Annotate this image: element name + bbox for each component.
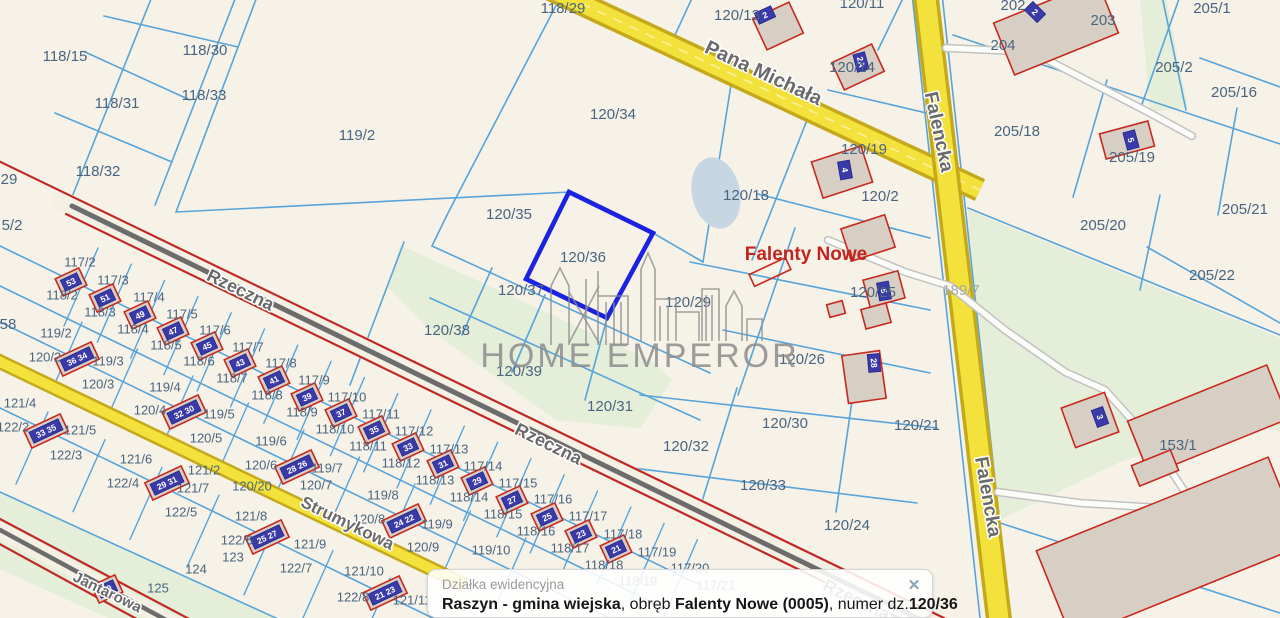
- parcel-label: 117/19: [638, 544, 677, 559]
- parcel-label: 118/32: [76, 163, 121, 180]
- parcel-label: 117/18: [604, 526, 643, 541]
- parcel-label: 117/9: [298, 372, 330, 387]
- parcel-label: 118/14: [450, 489, 489, 504]
- parcel-label: 205/19: [1109, 149, 1155, 166]
- parcel-label: 117/12: [395, 423, 434, 438]
- parcel-label: 119/7: [311, 460, 343, 475]
- parcel-label: 120/2: [29, 349, 62, 364]
- parcel-label: 121/7: [177, 480, 210, 495]
- parcel-label: 118/30: [183, 42, 228, 59]
- parcel-label: 205/1: [1193, 0, 1231, 17]
- building: [753, 2, 804, 50]
- parcel-label: 121/6: [120, 451, 153, 466]
- parcel-label: 124: [185, 561, 207, 576]
- parcel-label: 120/36: [560, 249, 606, 266]
- parcel-label: 118/33: [182, 87, 227, 104]
- parcel-label: 122/3: [50, 447, 83, 462]
- parcel-label: 117/6: [199, 322, 231, 337]
- parcel-label: 122/8: [337, 589, 370, 604]
- parcel-label: 205/16: [1211, 84, 1257, 101]
- parcel-label: 120/18: [723, 187, 769, 204]
- parcel-boundary: [1140, 195, 1160, 290]
- parcel-boundary: [447, 0, 562, 215]
- parcel-label: 120/11: [840, 0, 885, 12]
- parcel-boundary: [176, 0, 258, 212]
- parcel-label: 118/11: [349, 438, 387, 453]
- parcel-label: 120/5: [190, 430, 223, 445]
- parcel-number: 120/36: [909, 596, 958, 613]
- parcel-label: 117/13: [430, 441, 469, 456]
- parcel-label: 117/2: [64, 254, 96, 269]
- parcel-label: 117/11: [362, 406, 400, 421]
- separator-text: , numer dz.: [829, 596, 909, 613]
- parcel-label: 120/4: [134, 402, 167, 417]
- separator-text: , obręb: [621, 596, 675, 613]
- watermark-skyline: [660, 306, 668, 341]
- parcel-label: 121/9: [294, 536, 327, 551]
- close-icon[interactable]: ✕: [905, 577, 923, 595]
- municipality-name: Raszyn - gmina wiejska: [442, 596, 621, 613]
- parcel-boundary: [1200, 58, 1280, 87]
- parcel-boundary: [828, 90, 935, 115]
- parcel-label: 121/11: [393, 592, 432, 607]
- parcel-label: 5/2: [2, 217, 23, 234]
- parcel-label: 118/29: [541, 0, 586, 17]
- map-canvas[interactable]: 535149474543413937353331292725232136 343…: [0, 0, 1280, 618]
- parcel-boundary: [55, 113, 172, 162]
- parcel-label: 205/22: [1189, 267, 1235, 284]
- parcel-label: 121/8: [235, 508, 268, 523]
- parcel-label: 119/10: [472, 542, 511, 557]
- parcel-label: 118/8: [251, 387, 283, 402]
- parcel-label: 123: [222, 549, 244, 564]
- parcel-label: 122/5: [165, 504, 198, 519]
- parcel-label: 120/9: [407, 539, 440, 554]
- parcel-label: 118/7: [216, 370, 248, 385]
- parcel-label: 122/2: [0, 419, 29, 434]
- parcel-label: 204: [990, 37, 1015, 54]
- district-name: Falenty Nowe (0005): [675, 596, 829, 613]
- parcel-label: 120/37: [498, 282, 544, 299]
- parcel-label: 120/25: [850, 284, 896, 301]
- parcel-label: 122/7: [280, 560, 313, 575]
- parcel-label: 122/4: [107, 475, 140, 490]
- parcel-boundary: [85, 52, 190, 100]
- parcel-label: 118/31: [95, 95, 140, 112]
- parcel-label: 120/32: [663, 438, 709, 455]
- watermark-text: HOME EMPEROR: [480, 337, 799, 375]
- parcel-label: 119/8: [367, 487, 399, 502]
- building: [827, 301, 846, 318]
- cadastral-map: 535149474543413937353331292725232136 343…: [0, 0, 1280, 618]
- info-panel-title: Działka ewidencyjna: [442, 577, 918, 592]
- parcel-label: 121/4: [4, 395, 37, 410]
- parcel-label: 118/13: [416, 472, 455, 487]
- parcel-label: 119/3: [92, 353, 124, 368]
- parcel-label: 118/16: [517, 523, 556, 538]
- parcel-label: 117/4: [133, 289, 165, 304]
- parcel-label: 119/4: [149, 379, 181, 394]
- parcel-info-panel: ✕ Działka ewidencyjna Raszyn - gmina wie…: [427, 569, 933, 618]
- parcel-label: 120/2: [861, 188, 899, 205]
- building: [861, 303, 891, 329]
- watermark-skyline: [641, 253, 655, 341]
- parcel-label: 119/2: [339, 127, 375, 144]
- parcel-label: 119/6: [255, 433, 287, 448]
- parcel-label: 120/6: [245, 457, 278, 472]
- parcel-label: 125: [147, 580, 169, 595]
- parcel-label: 117/15: [499, 475, 538, 490]
- parcel-label: 118/10: [316, 421, 355, 436]
- parcel-label: 205/18: [994, 123, 1040, 140]
- parcel-label: 120/34: [590, 106, 636, 123]
- parcel-label: 119/2: [40, 325, 72, 340]
- parcel-label: 205/20: [1080, 217, 1126, 234]
- parcel-label: 118/2: [46, 287, 78, 302]
- parcel-label: 189/7: [942, 282, 980, 299]
- parcel-label: 117/16: [534, 491, 573, 506]
- parcel-label: 117/8: [265, 355, 297, 370]
- parcel-label: 120/7: [300, 477, 333, 492]
- info-panel-text: Raszyn - gmina wiejska, obręb Falenty No…: [442, 594, 918, 615]
- parcel-label: 153/1: [1159, 437, 1197, 454]
- parcel-label: 119/5: [203, 406, 235, 421]
- parcel-label: 120/19: [841, 141, 887, 158]
- parcel-label: 118/3: [84, 304, 116, 319]
- parcel-label: 120/3: [82, 376, 115, 391]
- parcel-label: 120/20: [232, 478, 272, 493]
- parcel-label: 118/15: [484, 506, 523, 521]
- parcel-label: 118/5: [150, 337, 182, 352]
- parcel-label: 205/21: [1222, 201, 1268, 218]
- parcel-label: 120/14: [829, 59, 875, 76]
- parcel-label: 117/5: [166, 306, 198, 321]
- parcel-label: 120/31: [587, 398, 633, 415]
- parcel-label: 117/3: [97, 272, 129, 287]
- parcel-label: 120/13: [714, 7, 760, 24]
- parcel-label: 117/17: [569, 508, 608, 523]
- parcel-boundary: [653, 233, 703, 262]
- parcel-label: 118/17: [551, 540, 590, 555]
- parcel-label: 120/35: [486, 206, 532, 223]
- parcel-label: 117/7: [232, 339, 264, 354]
- meadow-wedge-top-right: [1140, 0, 1188, 112]
- parcel-label: 117/10: [328, 389, 367, 404]
- parcel-label: 118/6: [183, 353, 215, 368]
- parcel-label: 121/10: [344, 563, 384, 578]
- place-label: Falenty Nowe: [745, 244, 867, 265]
- parcel-label: 118/15: [43, 48, 88, 65]
- parcel-label: 117/14: [464, 458, 503, 473]
- parcel-label: 58: [0, 316, 16, 333]
- parcel-label: 122/6: [221, 532, 254, 547]
- parcel-label: 29: [1, 171, 18, 188]
- parcel-label: 203: [1090, 12, 1115, 29]
- parcel-label: 118/12: [382, 455, 421, 470]
- parcel-label: 120/30: [762, 415, 808, 432]
- parcel-label: 120/38: [424, 322, 470, 339]
- parcel-label: 205/2: [1155, 59, 1193, 76]
- house-number-label: 28: [869, 358, 880, 369]
- parcel-label: 121/2: [188, 462, 221, 477]
- parcel-label: 118/9: [286, 404, 318, 419]
- parcel-label: 120/24: [824, 517, 870, 534]
- parcel-label: 119/9: [421, 516, 453, 531]
- parcel-label: 120/21: [894, 417, 940, 434]
- parcel-label: 121/5: [64, 422, 97, 437]
- parcel-label: 120/29: [665, 294, 711, 311]
- parcel-label: 118/4: [117, 321, 149, 336]
- parcel-label: 202: [1000, 0, 1025, 14]
- parcel-label: 120/33: [740, 477, 786, 494]
- parcel-boundary: [432, 215, 447, 246]
